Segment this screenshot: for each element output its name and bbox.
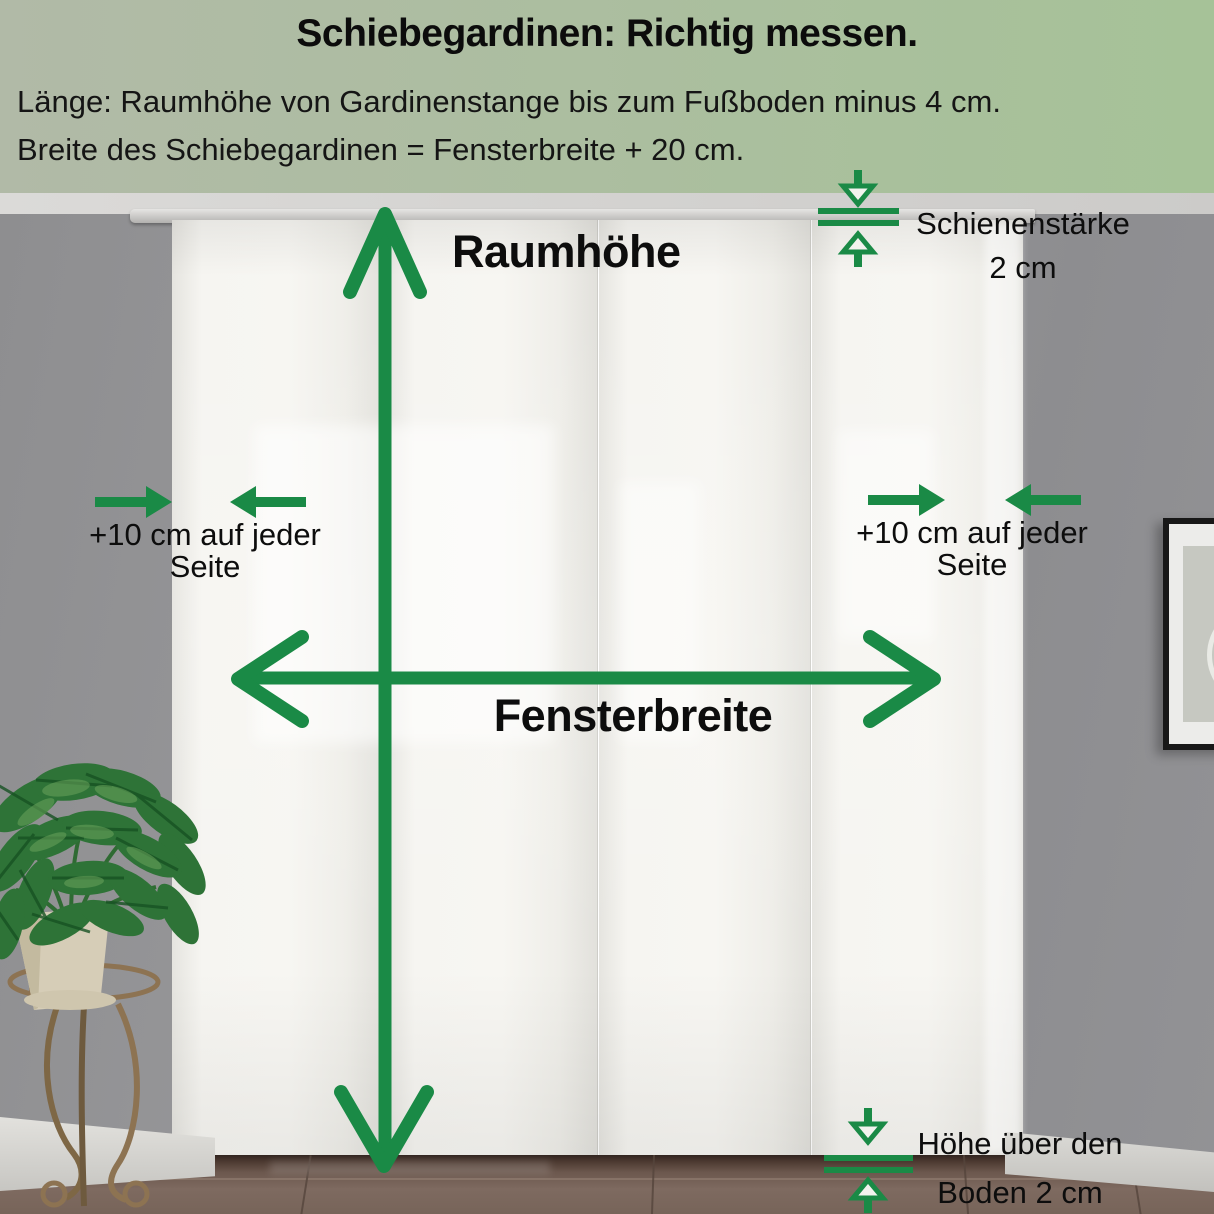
floor-clearance-line2: Boden 2 cm	[895, 1169, 1145, 1214]
grout-line	[651, 1155, 655, 1214]
left-side-line2: Seite	[55, 551, 355, 583]
room-height-label: Raumhöhe	[452, 226, 681, 278]
frame-mat	[1169, 524, 1214, 744]
curtain-edge-highlight	[985, 224, 1021, 1154]
artwork-circle	[1207, 604, 1214, 706]
rail-thickness-line2: 2 cm	[898, 246, 1148, 290]
floor-clearance-line1: Höhe über den	[895, 1120, 1145, 1169]
right-side-allowance-label: +10 cm auf jeder Seite	[822, 517, 1122, 581]
right-side-line2: Seite	[822, 549, 1122, 581]
page-title: Schiebegardinen: Richtig messen.	[0, 12, 1214, 56]
header-band: Schiebegardinen: Richtig messen. Länge: …	[0, 0, 1214, 193]
window-width-label: Fensterbreite	[478, 690, 788, 742]
left-side-allowance-label: +10 cm auf jeder Seite	[55, 519, 355, 583]
potted-plant	[0, 742, 210, 1214]
infographic-canvas: Schiebegardinen: Richtig messen. Länge: …	[0, 0, 1214, 1214]
picture-frame	[1163, 518, 1214, 750]
instruction-length: Länge: Raumhöhe von Gardinenstange bis z…	[17, 84, 1001, 120]
rail-thickness-label: Schienenstärke 2 cm	[898, 202, 1148, 290]
floor-clearance-label: Höhe über den Boden 2 cm	[895, 1120, 1145, 1214]
instruction-width: Breite des Schiebegardinen = Fensterbrei…	[17, 132, 744, 168]
right-side-line1: +10 cm auf jeder	[822, 517, 1122, 549]
frame-artwork	[1183, 546, 1214, 722]
left-side-line1: +10 cm auf jeder	[55, 519, 355, 551]
rail-thickness-line1: Schienenstärke	[898, 202, 1148, 246]
floor-reflection	[270, 1161, 550, 1174]
